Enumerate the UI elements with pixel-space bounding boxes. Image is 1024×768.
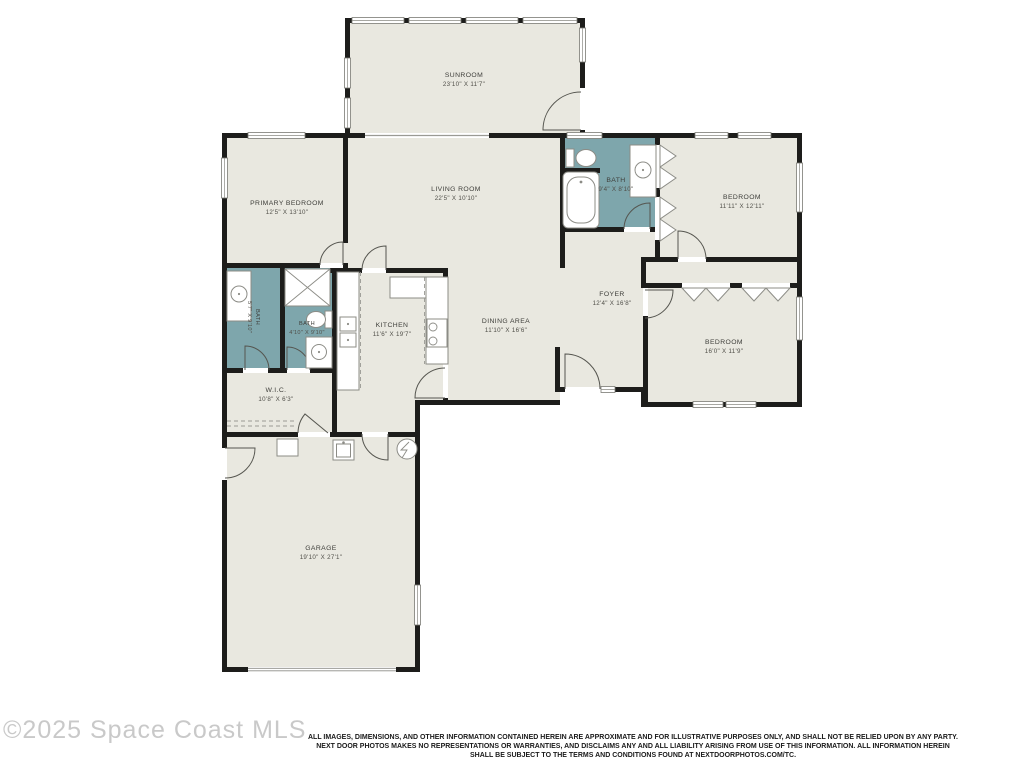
opening [362, 432, 388, 437]
room-label-wic: W.I.C. [266, 387, 287, 394]
room-dims-dining-area: 11'10" X 16'6" [485, 327, 527, 334]
disclaimer-line-1: ALL IMAGES, DIMENSIONS, AND OTHER INFORM… [255, 733, 1011, 742]
room-label-dining-area: DINING AREA [482, 318, 530, 325]
room-dims-wic: 10'8" X 6'3" [258, 396, 293, 403]
sink-drain [318, 351, 320, 353]
toilet-tank [566, 149, 574, 167]
room-label-bedroom-se: BEDROOM [705, 339, 743, 346]
floorplan-page: SUNROOM 23'10" X 11'7" LIVING ROOM 22'5"… [0, 0, 1024, 768]
tub-faucet [580, 181, 583, 184]
closet-opening [655, 197, 660, 240]
bathtub-inner [567, 177, 595, 223]
sink-drain [642, 169, 644, 171]
utility-sink-basin [337, 444, 351, 457]
room-dims-kitchen: 11'6" X 19'7" [373, 331, 411, 338]
toilet-tank [325, 311, 332, 328]
opening [298, 432, 330, 437]
room-dims-living-room: 22'5" X 10'10" [435, 195, 478, 202]
floorplan-drawing: SUNROOM 23'10" X 11'7" LIVING ROOM 22'5"… [0, 0, 1024, 768]
disclaimer-line-2: NEXT DOOR PHOTOS MAKES NO REPRESENTATION… [255, 742, 1011, 751]
room-label-bath-small: BATH [299, 321, 315, 327]
garage-floor [225, 435, 417, 669]
utility-faucet [342, 441, 345, 444]
toilet-bowl [576, 150, 596, 167]
room-label-garage: GARAGE [305, 545, 337, 552]
opening [678, 257, 706, 262]
opening [624, 227, 650, 232]
room-label-foyer: FOYER [599, 291, 624, 298]
room-label-bedroom-ne: BEDROOM [723, 194, 761, 201]
room-label-bath-main: BATH [606, 177, 625, 184]
room-dims-bath-hall: 5'7" X 9'10" [246, 301, 252, 333]
disclaimer-line-3: SHALL BE SUBJECT TO THE TERMS AND CONDIT… [255, 751, 1011, 760]
room-dims-garage: 19'10" X 27'1" [300, 554, 343, 561]
opening [580, 88, 585, 130]
opening [362, 268, 386, 273]
room-dims-foyer: 12'4" X 16'8" [593, 300, 632, 307]
room-label-bath-hall: BATH [254, 309, 260, 325]
room-label-sunroom: SUNROOM [445, 72, 483, 79]
room-dims-bath-small: 4'10" X 9'10" [289, 330, 325, 336]
disclaimer: ALL IMAGES, DIMENSIONS, AND OTHER INFORM… [255, 733, 1011, 760]
hall-floor [337, 400, 417, 434]
opening [320, 263, 343, 268]
closet-opening [742, 283, 790, 288]
sink-drain [347, 339, 349, 341]
opening [243, 368, 268, 373]
room-label-primary-bedroom: PRIMARY BEDROOM [250, 200, 324, 207]
water-heater [397, 439, 417, 459]
entry-notch [560, 392, 641, 405]
room-dims-sunroom: 23'10" X 11'7" [443, 81, 485, 88]
room-dims-bath-main: 9'4" X 8'10" [598, 186, 633, 193]
closet-opening [682, 283, 730, 288]
sink-drain [347, 323, 349, 325]
room-dims-bedroom-se: 16'0" X 11'9" [705, 348, 743, 355]
room-label-kitchen: KITCHEN [376, 322, 409, 329]
room-dims-primary-bedroom: 12'5" X 13'10" [266, 209, 309, 216]
sink-drain [238, 293, 240, 295]
opening [287, 368, 310, 373]
opening [222, 448, 227, 480]
room-label-living-room: LIVING ROOM [431, 186, 481, 193]
room-dims-bedroom-ne: 11'11" X 12'11" [720, 203, 765, 210]
opening [643, 288, 648, 316]
appliance-box [277, 439, 298, 456]
